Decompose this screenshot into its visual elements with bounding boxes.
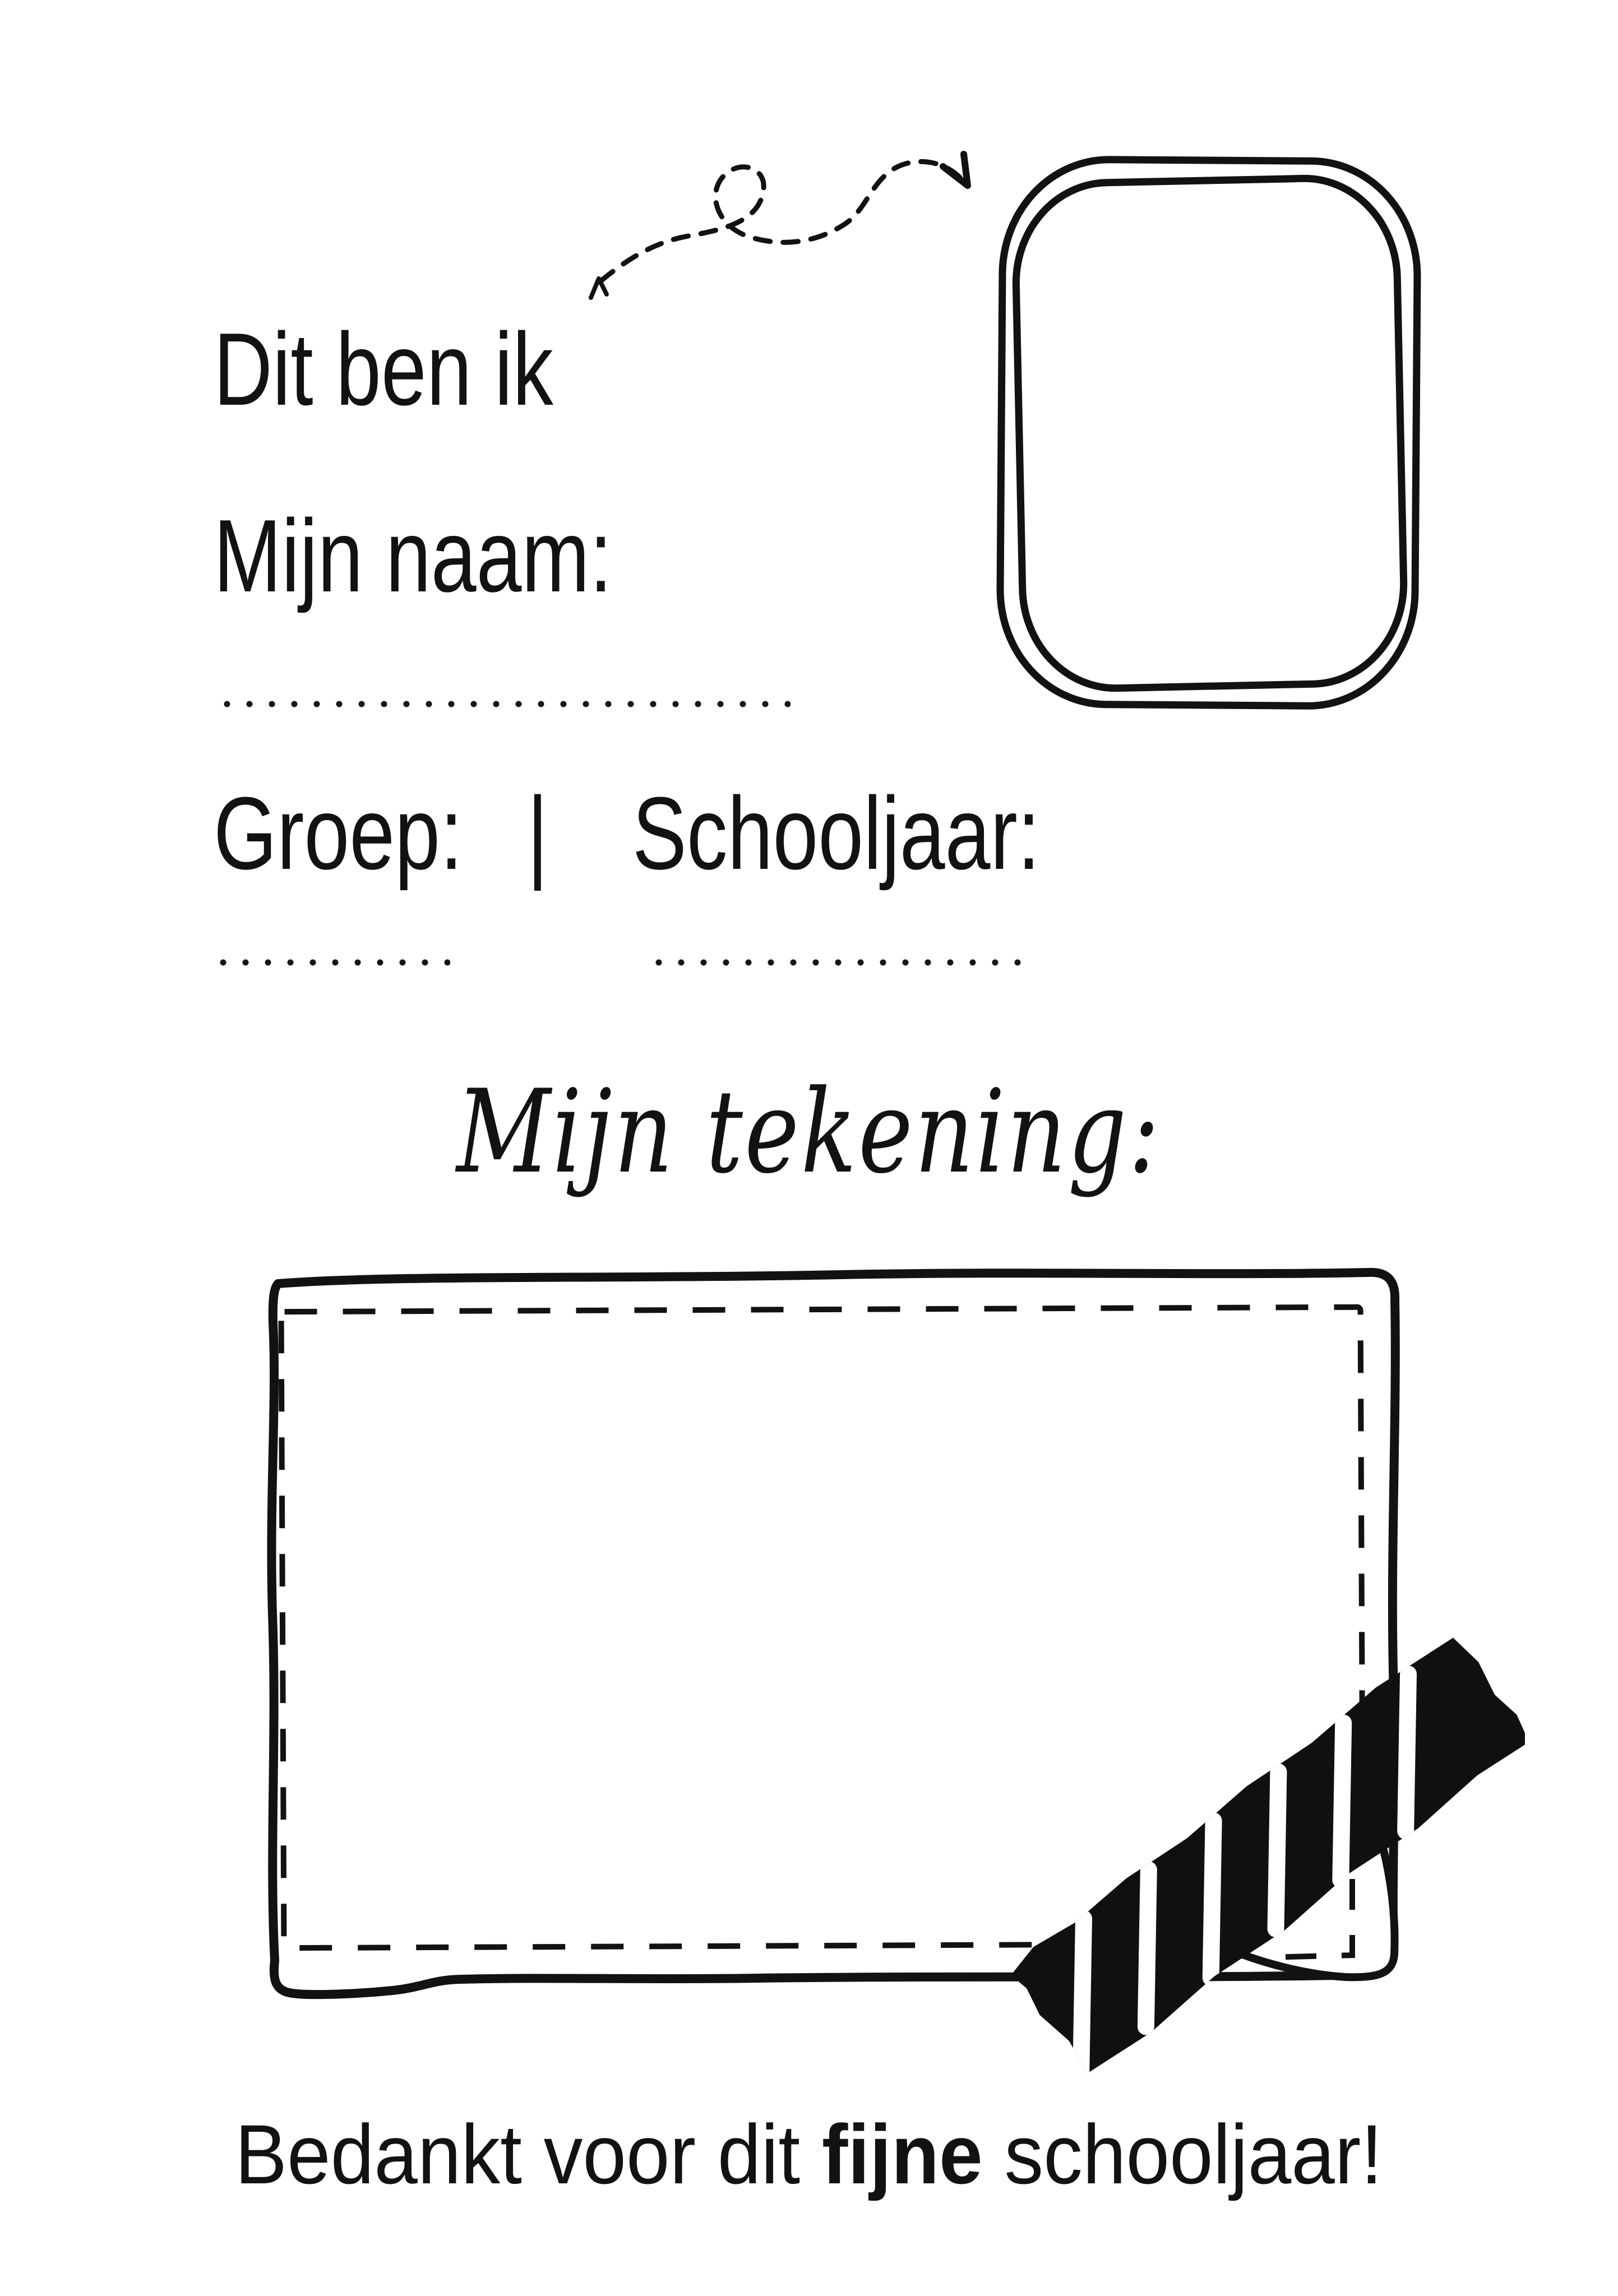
page-title-text: Dit ben ik: [214, 312, 553, 425]
group-label: Groep:: [214, 776, 529, 890]
squiggle-arrow-path: [601, 161, 963, 281]
footer-prefix: Bedankt voor dit: [235, 2107, 822, 2201]
footer-message: Bedankt voor dit fijne schooljaar!: [0, 2108, 1618, 2201]
footer-emphasis: fijne: [822, 2107, 983, 2201]
schoolyear-write-line: [648, 958, 1034, 967]
schoolyear-label: Schooljaar:: [632, 776, 1149, 890]
arrow-start-head-icon: [591, 279, 607, 298]
group-write-line: [212, 958, 450, 967]
page-title: Dit ben ik: [214, 312, 644, 425]
arrow-end-head-icon: [943, 154, 968, 186]
worksheet-page: Dit ben ik Mijn naam: Groep: | Schooljaa…: [0, 0, 1618, 2296]
drawing-caption: Mijn tekening:: [0, 1070, 1618, 1196]
footer-message-text: Bedankt voor dit fijne schooljaar!: [235, 2108, 1383, 2201]
squiggle-arrow-icon: [572, 132, 998, 317]
photo-frame-inner-line: [1014, 177, 1406, 690]
name-label: Mijn naam:: [214, 499, 718, 612]
name-write-line: [216, 700, 790, 709]
photo-frame-icon: [992, 152, 1430, 713]
drawing-box: [224, 1256, 1525, 2085]
group-schoolyear-divider: |: [527, 776, 554, 890]
drawing-caption-text: Mijn tekening:: [456, 1070, 1161, 1196]
photo-frame-outer-line: [1000, 159, 1418, 706]
footer-suffix: schooljaar!: [983, 2107, 1383, 2201]
